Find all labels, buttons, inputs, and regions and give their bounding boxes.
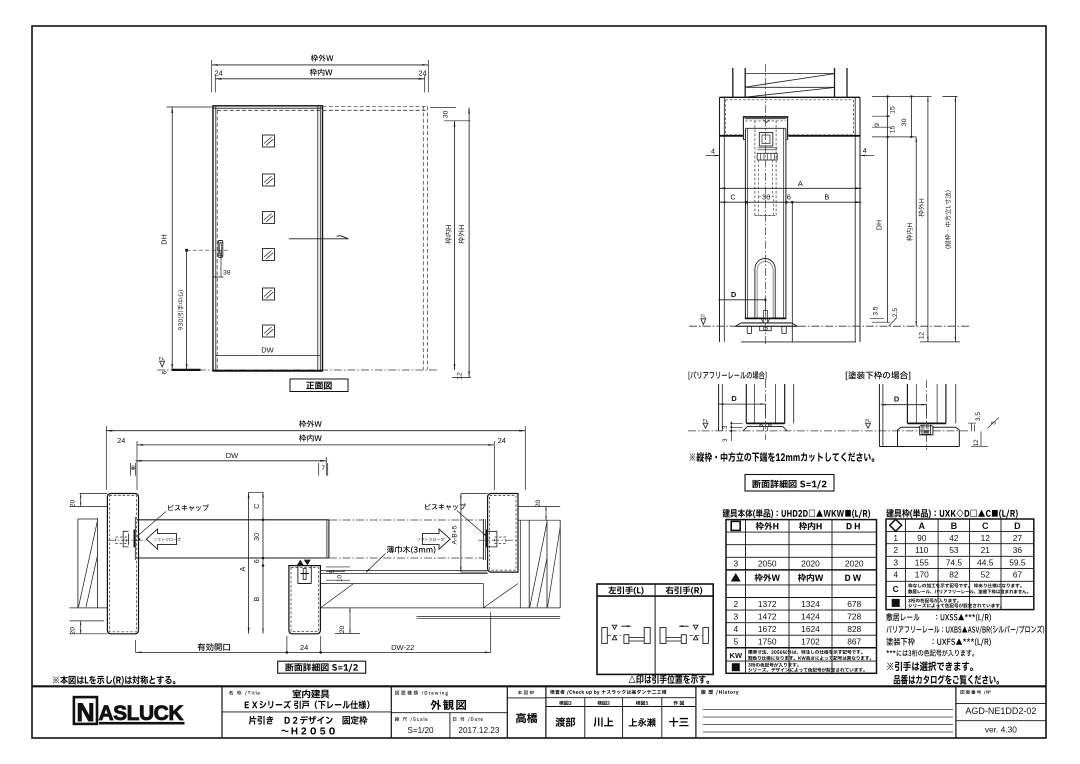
svg-text:4: 4 — [893, 570, 898, 580]
svg-text:1424: 1424 — [801, 612, 820, 622]
svg-text:B: B — [824, 193, 829, 202]
svg-text:S=1/20: S=1/20 — [407, 726, 434, 735]
svg-text:3: 3 — [733, 559, 738, 569]
svg-text:5: 5 — [733, 637, 738, 647]
svg-text:A: A — [919, 521, 926, 531]
svg-text:15: 15 — [890, 106, 897, 114]
svg-text:1750: 1750 — [758, 637, 777, 647]
svg-text:DH: DH — [160, 234, 169, 244]
svg-text:38: 38 — [223, 270, 231, 277]
svg-text:12: 12 — [973, 439, 980, 447]
svg-text:728: 728 — [847, 612, 861, 622]
svg-text:67: 67 — [1013, 570, 1023, 580]
svg-text:24: 24 — [214, 69, 222, 78]
svg-text:DH: DH — [876, 220, 883, 230]
svg-text:30: 30 — [762, 193, 770, 202]
svg-text:2: 2 — [733, 599, 738, 609]
svg-text:4: 4 — [863, 146, 867, 155]
svg-text:A: A — [798, 179, 803, 188]
svg-text:42: 42 — [949, 533, 959, 543]
svg-text:AGD-NE1DD2-02: AGD-NE1DD2-02 — [965, 706, 1036, 716]
svg-text:6: 6 — [162, 370, 169, 374]
svg-text:2: 2 — [893, 545, 898, 555]
svg-text:170: 170 — [915, 570, 929, 580]
svg-text:A-B+5: A-B+5 — [451, 525, 458, 544]
svg-text:90: 90 — [917, 533, 927, 543]
svg-text:20: 20 — [535, 500, 542, 508]
svg-text:1: 1 — [893, 533, 898, 543]
svg-text:C: C — [893, 584, 899, 594]
svg-text:110: 110 — [915, 545, 929, 555]
svg-text:30: 30 — [252, 533, 261, 541]
svg-text:D: D — [731, 394, 737, 403]
svg-text:20: 20 — [69, 627, 76, 635]
svg-text:24: 24 — [300, 643, 308, 652]
svg-text:2.5: 2.5 — [892, 308, 899, 317]
svg-text:9: 9 — [874, 123, 881, 127]
svg-text:12: 12 — [981, 533, 991, 543]
svg-text:2020: 2020 — [801, 559, 820, 569]
svg-text:30: 30 — [443, 110, 450, 118]
svg-text:12: 12 — [919, 332, 926, 340]
svg-text:15: 15 — [890, 126, 897, 134]
svg-text:DW-22: DW-22 — [391, 643, 414, 652]
svg-text:3.5: 3.5 — [873, 306, 880, 315]
svg-text:74.5: 74.5 — [946, 558, 963, 568]
svg-text:3.5: 3.5 — [975, 412, 982, 421]
svg-text:2017.12.23: 2017.12.23 — [458, 726, 499, 735]
svg-text:D: D — [894, 395, 900, 404]
svg-text:6: 6 — [787, 193, 791, 202]
svg-text:B: B — [951, 521, 958, 531]
svg-text:DW: DW — [226, 451, 239, 460]
svg-text:155: 155 — [915, 558, 929, 568]
svg-text:24: 24 — [117, 436, 125, 445]
svg-text:1672: 1672 — [758, 624, 777, 634]
svg-text:36: 36 — [1013, 545, 1023, 555]
svg-text:10: 10 — [337, 575, 344, 582]
svg-text:53: 53 — [949, 545, 959, 555]
svg-text:1472: 1472 — [758, 612, 777, 622]
svg-text:30: 30 — [901, 118, 908, 126]
svg-text:D: D — [731, 290, 737, 299]
svg-text:6: 6 — [252, 559, 261, 563]
svg-text:3: 3 — [733, 612, 738, 622]
svg-text:3: 3 — [722, 438, 729, 442]
svg-text:1372: 1372 — [758, 599, 777, 609]
svg-text:3: 3 — [722, 425, 729, 429]
svg-text:59.5: 59.5 — [1009, 558, 1026, 568]
svg-text:52: 52 — [981, 570, 991, 580]
svg-text:2050: 2050 — [758, 559, 777, 569]
svg-text:D: D — [1014, 521, 1021, 531]
svg-text:1624: 1624 — [801, 624, 820, 634]
svg-text:ASLUCK: ASLUCK — [99, 702, 184, 725]
svg-text:12: 12 — [457, 372, 464, 380]
svg-text:44.5: 44.5 — [977, 558, 994, 568]
svg-text:C: C — [730, 193, 736, 202]
svg-text:867: 867 — [847, 637, 861, 647]
svg-text:5: 5 — [329, 569, 336, 573]
svg-text:C: C — [252, 503, 261, 508]
svg-text:KW: KW — [729, 651, 742, 660]
svg-text:B: B — [252, 596, 261, 601]
svg-text:4: 4 — [733, 624, 738, 634]
svg-text:N: N — [76, 699, 94, 727]
svg-text:C: C — [982, 521, 989, 531]
svg-text:3: 3 — [893, 558, 898, 568]
svg-text:1324: 1324 — [801, 599, 820, 609]
svg-text:4: 4 — [711, 147, 715, 156]
svg-text:20: 20 — [69, 500, 76, 508]
svg-text:24: 24 — [498, 436, 506, 445]
svg-text:7: 7 — [321, 465, 325, 472]
svg-text:828: 828 — [847, 624, 861, 634]
svg-text:24: 24 — [418, 69, 426, 78]
svg-text:DW: DW — [261, 346, 274, 355]
svg-text:A: A — [238, 566, 247, 571]
svg-text:82: 82 — [949, 570, 959, 580]
svg-text:ver. 4.30: ver. 4.30 — [985, 724, 1017, 734]
svg-text:21: 21 — [981, 545, 991, 555]
svg-text:2020: 2020 — [845, 559, 864, 569]
svg-text:27: 27 — [1013, 533, 1023, 543]
svg-text:678: 678 — [847, 599, 861, 609]
svg-text:1702: 1702 — [801, 637, 820, 647]
svg-text:20: 20 — [339, 626, 346, 634]
